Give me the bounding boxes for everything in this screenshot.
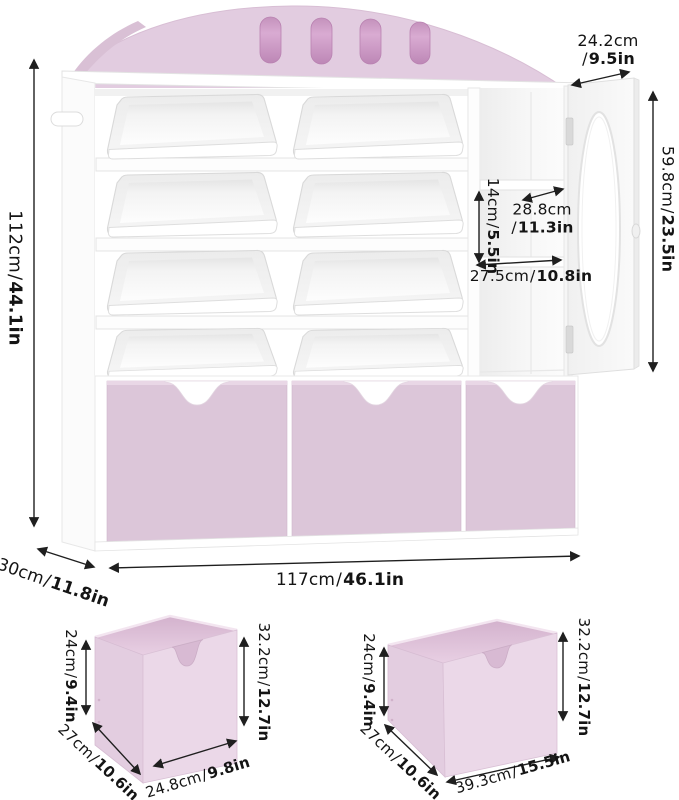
shelf-board-2 xyxy=(96,238,468,251)
storage-organizer-dimension-diagram: 112cm/44.1in 24.2cm /9.5in 59.8cm/23.5in… xyxy=(0,0,679,800)
wide-drawer-box xyxy=(388,620,557,777)
toy-bin-row3-left xyxy=(107,250,277,315)
dim-label-small-front-height: 24cm/9.4in xyxy=(62,629,78,722)
shelf-board-3 xyxy=(96,316,468,329)
dim-label-overall-height: 112cm/44.1in xyxy=(5,210,24,346)
dim-label-shelf-depth: 28.8cm /11.3in xyxy=(510,201,573,236)
toy-bin-row1-left xyxy=(107,94,277,159)
door-knob xyxy=(632,224,640,238)
arch-cutout-4 xyxy=(410,22,430,64)
door-hinge-top xyxy=(566,118,573,145)
dim-label-wide-back-height: 32.2cm/12.7in xyxy=(575,618,591,737)
shelf-board-1 xyxy=(96,158,468,171)
toy-bin-row4-right xyxy=(293,328,463,378)
dim-label-cubby-height: 14cm/5.5in xyxy=(485,178,501,274)
arrow-base-depth xyxy=(38,549,94,567)
dim-label-cabinet-width: 27.5cm/10.8in xyxy=(470,268,593,284)
toy-bin-row4-left xyxy=(107,328,277,378)
arch-cutout-3 xyxy=(360,19,381,64)
hanging-peg xyxy=(51,112,83,126)
small-drawer-box xyxy=(95,616,237,783)
dim-label-small-back-height: 32.2cm/12.7in xyxy=(255,623,271,742)
drawer-section xyxy=(95,376,578,551)
arrow-overall-width xyxy=(110,556,579,568)
dim-label-wide-front-height: 24cm/9.4in xyxy=(360,633,376,726)
toy-bin-row2-left xyxy=(107,172,277,237)
arch-cutout-2 xyxy=(311,18,332,64)
dim-label-top-depth: 24.2cm /9.5in xyxy=(577,32,638,68)
dim-label-overall-width: 117cm/46.1in xyxy=(276,572,404,590)
door-hinge-bottom xyxy=(566,326,573,353)
cabinet-divider xyxy=(468,88,480,380)
side-panel-left xyxy=(62,77,95,551)
door-window xyxy=(578,112,620,346)
toy-bin-row3-right xyxy=(293,250,463,315)
bin-shelf-area xyxy=(95,88,468,384)
cabinet-door xyxy=(566,78,640,375)
dim-label-door-height: 59.8cm/23.5in xyxy=(659,146,676,272)
arch-cutout-1 xyxy=(260,17,281,63)
toy-bin-row2-right xyxy=(293,172,463,237)
toy-bin-row1-right xyxy=(293,94,463,159)
door-edge xyxy=(634,78,639,369)
